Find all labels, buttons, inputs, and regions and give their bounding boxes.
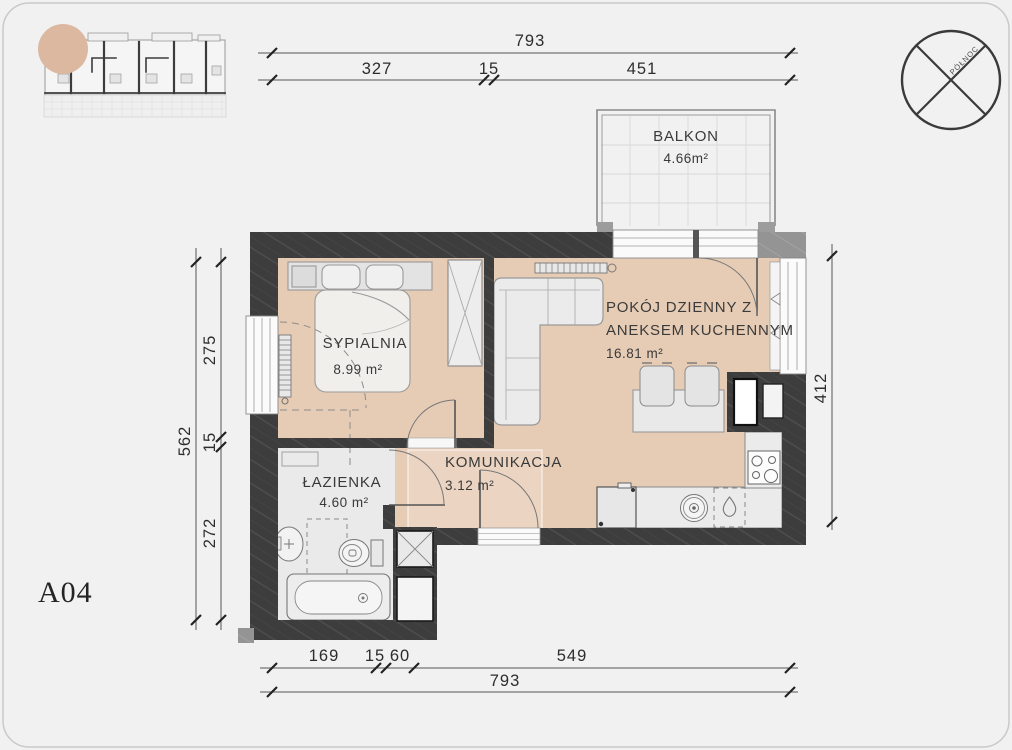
wall-bathroom-right — [383, 505, 395, 529]
kitchen-shaft-box-1 — [734, 379, 757, 425]
wall-bottom-right — [540, 528, 782, 545]
shaft-box-plain — [397, 577, 433, 621]
dim-bottom-seg-2: 60 — [390, 647, 410, 665]
living-window — [770, 258, 806, 374]
bathtub — [287, 574, 390, 620]
dim-left-seg-2: 272 — [201, 518, 219, 549]
living-room-label-line2: ANEKSEM KUCHENNYM — [606, 322, 794, 339]
shaft-box-x — [397, 531, 433, 567]
dim-right-total: 412 — [812, 373, 830, 404]
bedroom-label: SYPIALNIA — [323, 335, 408, 352]
dim-top-total: 793 — [515, 32, 546, 50]
balcony-slab-left — [597, 222, 613, 232]
wardrobe — [448, 260, 482, 366]
bedroom-radiator — [279, 335, 291, 404]
kitchen-shaft-box-2 — [763, 384, 783, 418]
apartment-code: A04 — [38, 576, 93, 609]
living-room-area: 16.81 m² — [606, 346, 663, 361]
hallway-area: 3.12 m² — [445, 478, 494, 493]
balcony-area: 4.66m² — [663, 151, 708, 166]
dim-top-seg-1: 15 — [479, 60, 499, 78]
dining-chair — [685, 363, 719, 406]
dim-bottom-seg-0: 169 — [309, 647, 340, 665]
hallway-label: KOMUNIKACJA — [445, 454, 562, 471]
dim-left-seg-0: 275 — [201, 335, 219, 366]
fridge — [597, 483, 636, 528]
floorplan-page: PÓŁNOC BALKON 4.66m² — [0, 0, 1012, 750]
living-radiator — [535, 263, 616, 273]
window-mullion — [693, 230, 699, 258]
kitchen-counter-bottom — [636, 487, 782, 528]
dim-bottom-seg-3: 549 — [557, 647, 588, 665]
dim-top-seg-0: 327 — [362, 60, 393, 78]
wall-partition-bedroom-living — [484, 252, 494, 448]
balcony-label: BALKON — [653, 128, 719, 145]
dim-top-seg-2: 451 — [627, 60, 658, 78]
cooktop — [748, 451, 780, 484]
wall-bedroom-bottom — [270, 438, 408, 448]
bathroom-area: 4.60 m² — [319, 495, 368, 510]
balcony-slab-right — [758, 222, 775, 232]
balcony: BALKON 4.66m² — [597, 110, 775, 232]
wall-bedroom-bottom-stub — [456, 438, 484, 448]
unit-highlight-circle — [38, 24, 88, 74]
bedroom-window — [246, 316, 278, 414]
bedroom-area: 8.99 m² — [333, 362, 382, 377]
wall-cap-bottom-left — [238, 628, 254, 643]
wall-bottom-left — [250, 620, 393, 640]
toilet — [339, 540, 383, 567]
dining-chair — [640, 363, 674, 406]
dim-left-total: 562 — [176, 426, 194, 457]
dim-bottom-seg-1: 15 — [365, 647, 385, 665]
washbasin — [275, 527, 303, 561]
window-sill — [770, 262, 780, 370]
dim-bottom-total: 793 — [490, 672, 521, 690]
wall-bottom-mid — [437, 528, 478, 545]
floorplan-canvas: PÓŁNOC BALKON 4.66m² — [0, 0, 1012, 750]
dim-left-seg-1: 15 — [201, 432, 219, 452]
living-room-label-line1: POKÓJ DZIENNY Z — [606, 299, 752, 316]
bathroom-label: ŁAZIENKA — [303, 474, 382, 491]
kitchen-sink — [681, 495, 708, 522]
wall-top-right-gray — [758, 232, 806, 258]
